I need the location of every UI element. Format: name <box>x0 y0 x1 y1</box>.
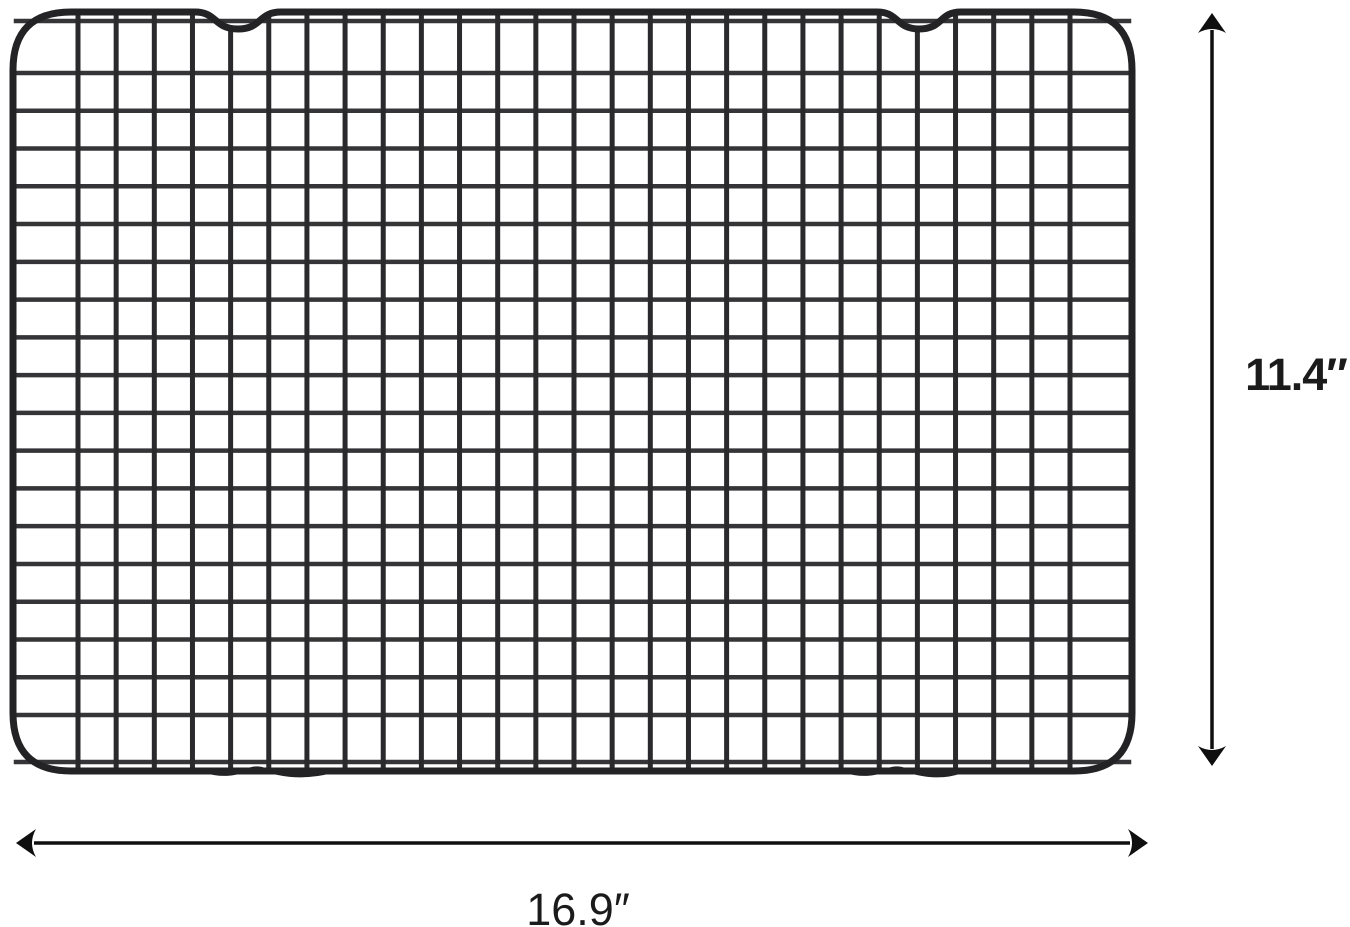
height-dimension-arrow <box>1198 13 1226 766</box>
cooling-rack-image <box>0 0 1350 927</box>
product-diagram: 11.4″ 16.9″ <box>0 0 1350 927</box>
width-dimension-arrow <box>16 829 1148 857</box>
arrowhead-left-icon <box>16 829 36 857</box>
cooling-rack <box>13 12 1132 775</box>
rack-grid-wires <box>16 15 1129 768</box>
width-dimension-label: 16.9″ <box>518 887 638 927</box>
height-dimension-label: 11.4″ <box>1236 352 1350 397</box>
arrowhead-right-icon <box>1128 829 1148 857</box>
